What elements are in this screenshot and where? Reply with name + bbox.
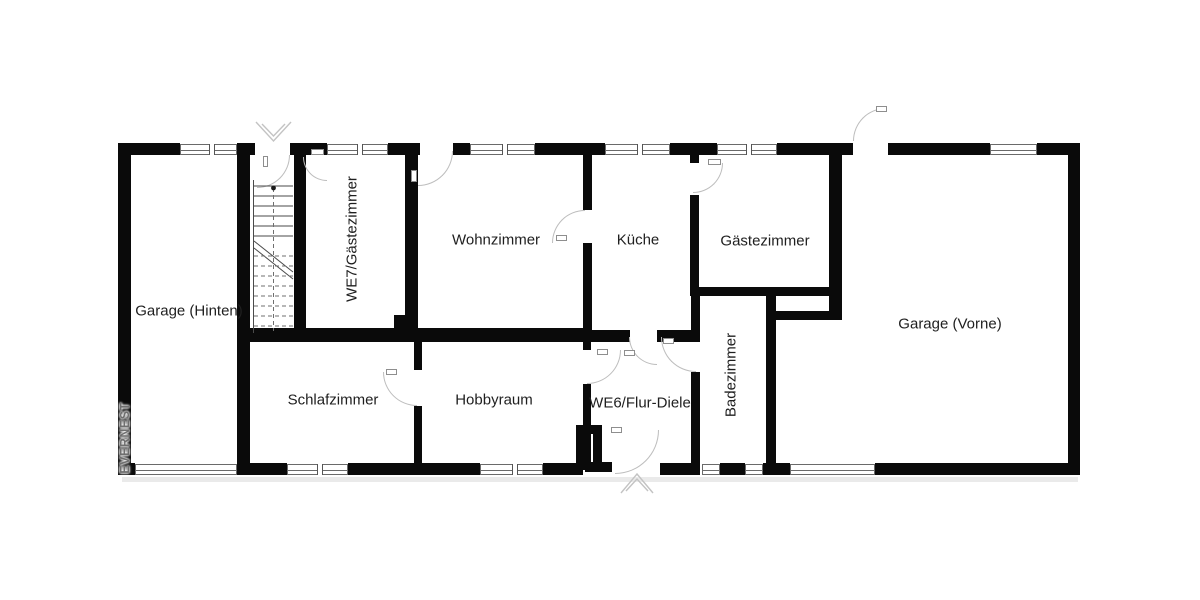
room-label-we6-flur-diele: WE6/Flur-Diele bbox=[589, 395, 691, 412]
staircase bbox=[254, 180, 294, 333]
room-label-kueche: Küche bbox=[617, 232, 660, 249]
plan-linework bbox=[0, 0, 1200, 600]
room-label-garage-vorne: Garage (Vorne) bbox=[898, 316, 1001, 333]
room-label-badezimmer: Badezimmer bbox=[723, 333, 740, 417]
watermark-evernest: EVERNEST bbox=[118, 402, 132, 473]
room-label-we7-gaestezimmer: WE7/Gästezimmer bbox=[344, 176, 361, 302]
room-label-wohnzimmer: Wohnzimmer bbox=[452, 232, 540, 249]
floor-plan: Garage (Hinten) WE7/Gästezimmer Wohnzimm… bbox=[0, 0, 1200, 600]
room-label-gaestezimmer: Gästezimmer bbox=[720, 233, 809, 250]
entrance-arrow-bottom bbox=[621, 474, 653, 493]
stair-walkline-start-dot bbox=[271, 186, 276, 191]
room-label-hobbyraum: Hobbyraum bbox=[455, 392, 533, 409]
room-label-schlafzimmer: Schlafzimmer bbox=[288, 392, 379, 409]
entrance-arrow-top bbox=[256, 122, 291, 141]
room-label-garage-hinten: Garage (Hinten) bbox=[135, 303, 243, 320]
